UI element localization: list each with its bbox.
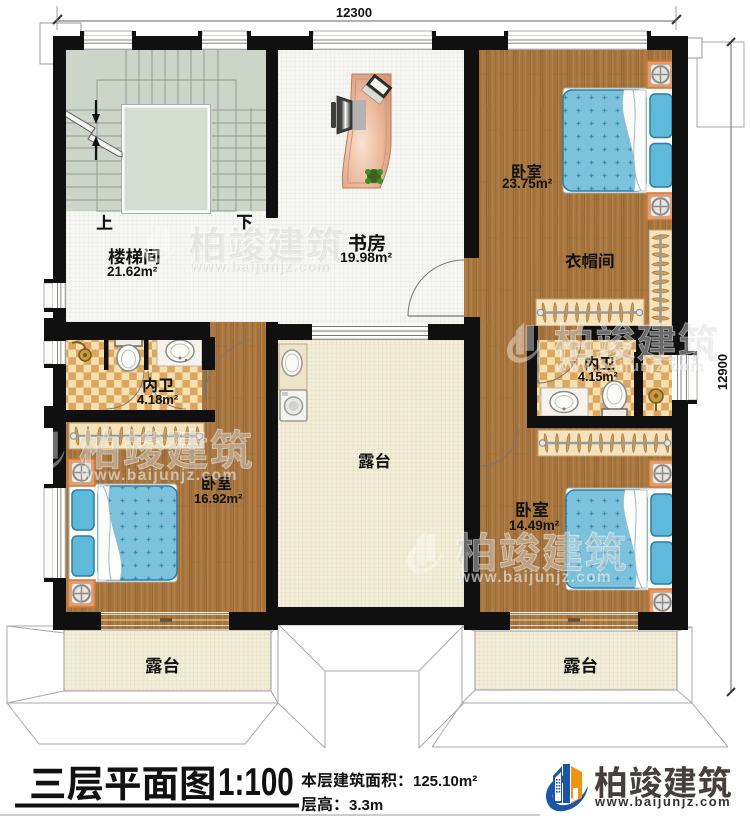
svg-text:21.62m²: 21.62m²: [107, 264, 158, 279]
svg-text:23.75m²: 23.75m²: [502, 176, 553, 191]
svg-text:3.3m: 3.3m: [349, 797, 383, 814]
svg-text:www.baijunjz.com: www.baijunjz.com: [189, 258, 330, 274]
svg-text:12300: 12300: [336, 5, 372, 20]
svg-text:1:100: 1:100: [218, 761, 294, 804]
svg-text:www.baijunjz.com: www.baijunjz.com: [457, 569, 612, 586]
svg-text:www.baijunjz.com: www.baijunjz.com: [594, 794, 731, 809]
svg-text:125.10m²: 125.10m²: [413, 773, 477, 790]
svg-text:4.18m²: 4.18m²: [137, 392, 179, 407]
svg-text:www.baijunjz.com: www.baijunjz.com: [555, 359, 704, 375]
svg-text:www.baijunjz.com: www.baijunjz.com: [80, 467, 238, 484]
svg-text:19.98m²: 19.98m²: [340, 249, 392, 265]
svg-text:16.92m²: 16.92m²: [194, 491, 243, 506]
svg-text:14.49m²: 14.49m²: [509, 518, 560, 533]
